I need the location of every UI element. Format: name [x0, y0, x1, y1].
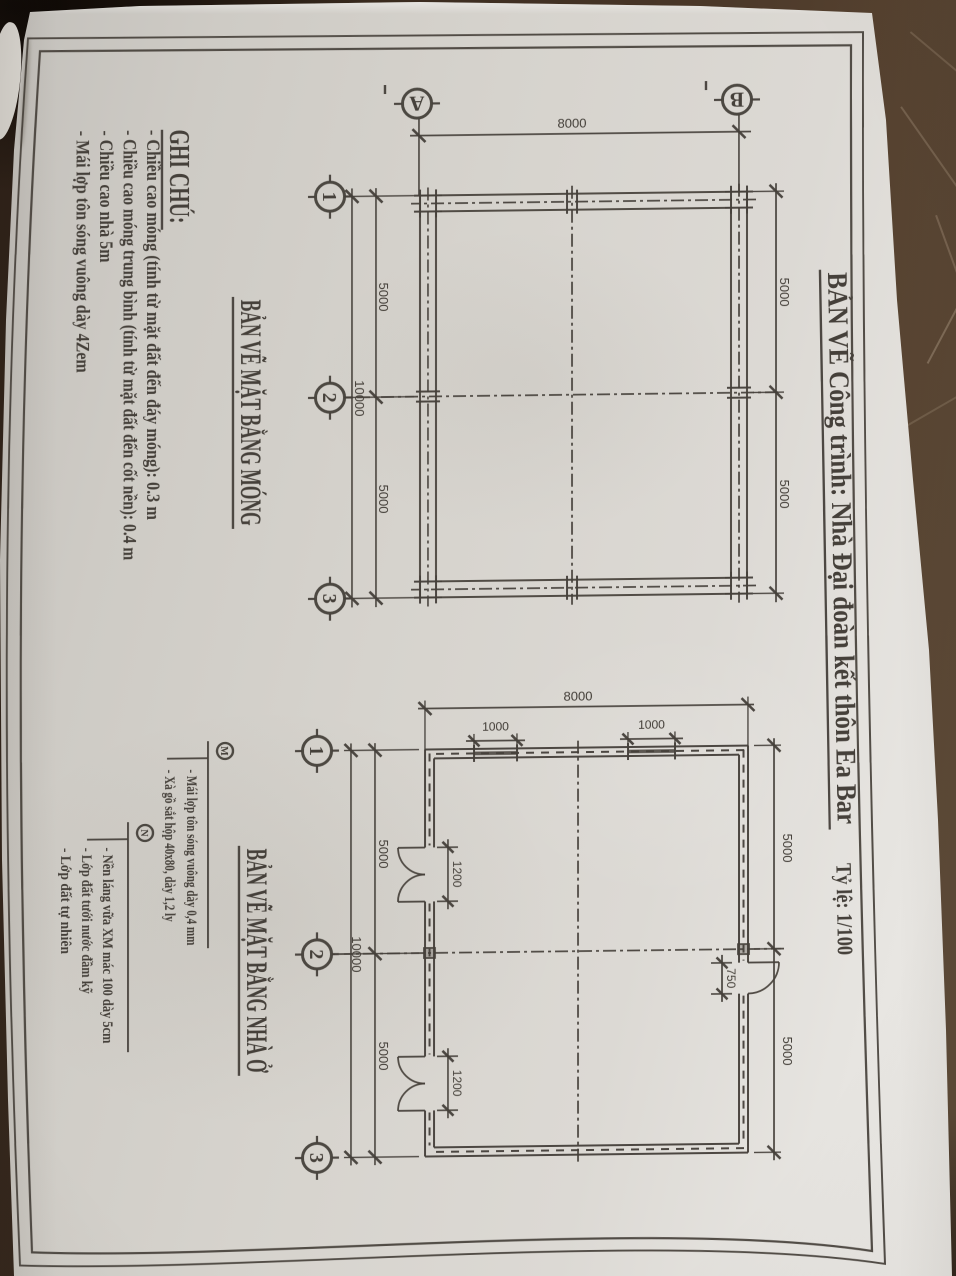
svg-text:5000: 5000	[780, 834, 795, 863]
svg-text:1000: 1000	[482, 719, 509, 733]
svg-text:1: 1	[318, 192, 340, 202]
svg-text:- Xà gồ sắt hộp 40x80, dày 1,2: - Xà gồ sắt hộp 40x80, dày 1,2 ly	[161, 770, 177, 923]
svg-text:5000: 5000	[780, 1037, 795, 1066]
svg-text:BẢN VẼ MẶT BẰNG MÓNG: BẢN VẼ MẶT BẰNG MÓNG	[234, 299, 268, 525]
svg-text:- Nền láng vữa XM mác 100 dày: - Nền láng vữa XM mác 100 dày 5cm	[99, 847, 115, 1044]
svg-text:750: 750	[724, 968, 738, 989]
svg-text:2: 2	[305, 949, 327, 959]
svg-text:BẢN VẼ MẶT BẰNG NHÀ Ở: BẢN VẼ MẶT BẰNG NHÀ Ở	[240, 848, 274, 1073]
svg-text:8000: 8000	[564, 688, 593, 703]
svg-text:Tỷ lệ: 1/100: Tỷ lệ: 1/100	[831, 863, 858, 956]
svg-text:- Chiều cao nhà 5m: - Chiều cao nhà 5m	[95, 130, 116, 262]
svg-text:- Mái lợp tôn sóng vuông dày 4: - Mái lợp tôn sóng vuông dày 4Zem	[72, 131, 93, 373]
svg-text:B: B	[730, 88, 744, 112]
svg-text:GHI CHÚ:: GHI CHÚ:	[163, 129, 196, 223]
svg-text:1200: 1200	[450, 1070, 464, 1097]
svg-text:- Chiều cao móng trung bình (t: - Chiều cao móng trung bình (tính từ mặt…	[119, 130, 140, 560]
svg-text:- Lớp đất tự nhiên: - Lớp đất tự nhiên	[57, 848, 73, 955]
svg-text:1: 1	[305, 746, 327, 756]
svg-text:5000: 5000	[376, 484, 391, 513]
svg-text:10000: 10000	[352, 380, 367, 416]
svg-text:- Lớp đất tưới nước đầm kỹ: - Lớp đất tưới nước đầm kỹ	[78, 848, 94, 995]
svg-text:5000: 5000	[777, 278, 792, 307]
svg-text:N: N	[138, 829, 149, 837]
svg-text:5000: 5000	[376, 1041, 391, 1070]
svg-text:3: 3	[318, 594, 340, 604]
svg-text:10000: 10000	[349, 936, 364, 972]
svg-text:M: M	[218, 746, 229, 756]
svg-text:2: 2	[318, 393, 340, 403]
svg-text:5000: 5000	[376, 282, 391, 311]
svg-text:- Mái lợp tôn sóng vuông dày 0: - Mái lợp tôn sóng vuông dày 0,4 mm	[183, 769, 199, 946]
svg-text:5000: 5000	[376, 839, 391, 868]
svg-text:5000: 5000	[777, 480, 792, 509]
svg-text:1000: 1000	[638, 718, 665, 732]
svg-text:A: A	[409, 92, 425, 116]
svg-text:3: 3	[305, 1153, 327, 1163]
svg-text:- Chiều cao móng (tính từ mặt: - Chiều cao móng (tính từ mặt đất đến đá…	[142, 130, 163, 520]
svg-text:8000: 8000	[558, 116, 587, 131]
svg-text:1200: 1200	[450, 861, 464, 888]
